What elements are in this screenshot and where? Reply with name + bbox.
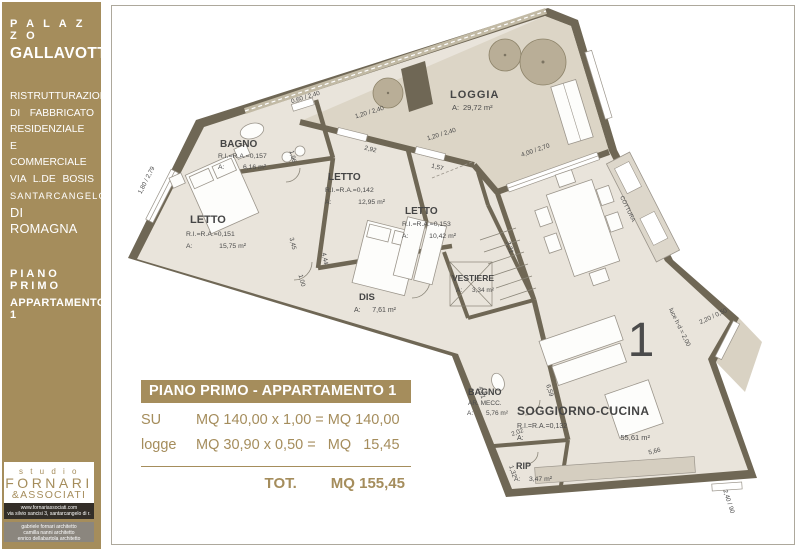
room-label-soggiorno: SOGGIORNO-CUCINA <box>517 404 649 418</box>
room-label-vestiere: VESTIERE <box>452 273 494 283</box>
floor-label: PIANO PRIMO <box>10 268 94 292</box>
room-area-label: A: <box>452 103 459 112</box>
summary-header: PIANO PRIMO - APPARTAMENTO 1 <box>141 380 411 403</box>
project-name-small: P A L A Z Z O <box>10 18 94 42</box>
room-area-label: A: <box>467 410 473 417</box>
architects-band: gabriele fornari architetto camilla nann… <box>4 522 94 542</box>
description-line: VIA L.DE BOSIS <box>10 172 94 189</box>
room-ratio: R.I.=R.A.=0,132 <box>517 423 567 430</box>
row-label: SU <box>141 412 196 428</box>
room-area-value: 29,72 m² <box>463 103 493 112</box>
room-area-value: 3,47 m² <box>529 476 553 483</box>
table-row: logge MQ 30,90 x 0,50 = MQ 15,45 <box>141 437 411 453</box>
description-line: SANTARCANGELO <box>10 188 94 205</box>
room-ratio: R.I.=R.A.=0,153 <box>402 221 451 228</box>
row-formula: MQ 140,00 x 1,00 = MQ 140,00 <box>196 412 400 428</box>
room-label-rip: RIP <box>516 461 531 471</box>
room-area-value: 6,16 m² <box>243 164 267 171</box>
architect-line: enrico dellabartola architetto <box>4 536 94 542</box>
room-area-value: 10,42 m² <box>429 233 457 240</box>
room-area-value: 15,75 m² <box>219 243 247 250</box>
description-line: RISTRUTTURAZIONE <box>10 89 94 106</box>
project-description: RISTRUTTURAZIONE DI FABBRICATO RESIDENZI… <box>10 89 94 238</box>
apartment-number: 1 <box>628 314 655 367</box>
room-area-value: 3,34 m² <box>472 287 495 294</box>
room-area-value: 55,61 m² <box>620 433 650 442</box>
total-label: TOT. <box>265 475 297 492</box>
room-area-label: A: <box>402 233 409 240</box>
apartment-label: APPARTAMENTO 1 <box>10 297 94 321</box>
studio-address: via silvio sancisi 3, santarcangelo di r… <box>4 511 94 517</box>
description-line: DI FABBRICATO <box>10 106 94 123</box>
total-row: TOT. MQ 155,45 <box>141 475 411 492</box>
dimension: 1,80 / 2,79 <box>137 165 157 195</box>
total-value: MQ 155,45 <box>331 475 405 492</box>
room-label-dis: DIS <box>359 292 375 303</box>
room-area-value: 7,61 m² <box>372 307 396 314</box>
summary-divider <box>141 466 411 467</box>
room-area-value: 12,95 m² <box>358 199 386 206</box>
room-ratio: R.I.=R.A.=0,151 <box>186 231 235 238</box>
room-area-label: A: <box>456 287 462 294</box>
description-line: RESIDENZIALE E <box>10 122 94 155</box>
studio-logo-name: FORNARI <box>4 476 94 490</box>
row-label: logge <box>141 437 196 453</box>
room-sub-label: AR. MECC. <box>468 400 502 407</box>
studio-contact: www.fornariassociati.com via silvio sanc… <box>4 503 94 519</box>
room-label-letto1: LETTO <box>190 214 226 226</box>
dimension: 2,40 / 90 <box>721 489 735 515</box>
room-area-label: A: <box>218 164 225 171</box>
table-row: SU MQ 140,00 x 1,00 = MQ 140,00 <box>141 412 411 428</box>
room-area-label: A: <box>354 307 361 314</box>
description-line: COMMERCIALE <box>10 155 94 172</box>
room-area-value: 5,76 m² <box>486 410 509 417</box>
room-ratio: R.I.=R.A.=0,157 <box>218 153 267 160</box>
room-area-label: A: <box>186 243 193 250</box>
project-name: GALLAVOTTI <box>10 45 94 63</box>
description-line: DI ROMAGNA <box>10 205 94 238</box>
room-area-label: A: <box>325 199 332 206</box>
area-summary-table: PIANO PRIMO - APPARTAMENTO 1 SU MQ 140,0… <box>141 380 411 492</box>
row-formula: MQ 30,90 x 0,50 = MQ 15,45 <box>196 437 400 453</box>
studio-logo-name2: &ASSOCIATI <box>4 490 94 501</box>
room-label-loggia: LOGGIA <box>450 89 499 101</box>
studio-logo: s t u d i o FORNARI &ASSOCIATI www.forna… <box>4 462 94 519</box>
room-ratio: R.I.=R.A.=0,142 <box>325 187 374 194</box>
room-label-letto3: LETTO <box>405 206 438 217</box>
room-label-bagno1: BAGNO <box>220 139 257 150</box>
room-label-letto2: LETTO <box>328 172 361 183</box>
